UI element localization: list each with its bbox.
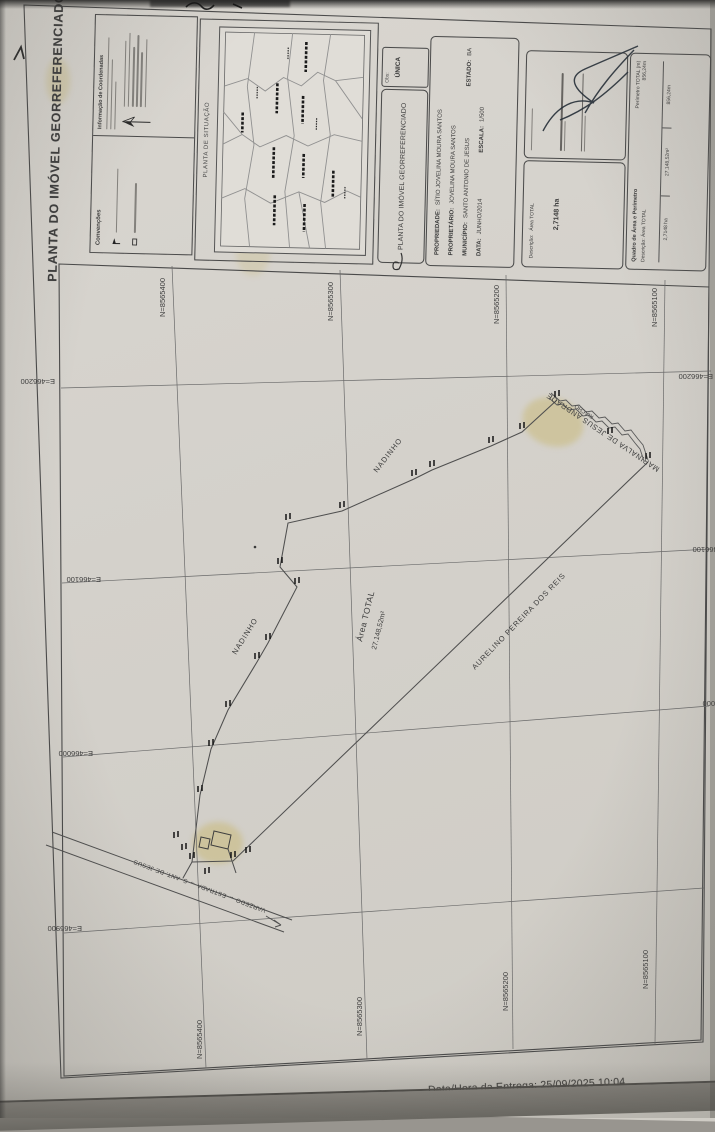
north-label-bottom: N=8565400	[195, 1020, 204, 1059]
grid-line-e1	[61, 371, 711, 388]
photo-right-edge	[710, 0, 715, 1118]
grid-line-n4	[655, 280, 665, 1044]
road-label: VARZEDO ← ESTRADA → S. ANT. DE JESUS	[133, 858, 267, 913]
pen-mark-d	[393, 253, 402, 270]
grid-lines	[61, 266, 711, 1068]
east-label-left: E=466100	[67, 575, 101, 584]
survey-point	[254, 546, 257, 549]
grid-line-e4	[64, 888, 704, 933]
north-label-bottom: N=8565200	[501, 972, 510, 1011]
north-label-top: N=8565300	[326, 282, 335, 321]
east-label-left: E=466000	[59, 749, 93, 758]
building	[199, 837, 210, 849]
sheet-border	[24, 5, 711, 1078]
photo-top-edge-dark	[150, 0, 290, 7]
east-label-left: E=465900	[48, 924, 82, 933]
north-label-top: N=8565100	[650, 288, 659, 327]
neighbor-label-nadinho: NADINHO	[230, 616, 260, 656]
photo-top-edge	[0, 0, 715, 9]
photo-left-edge	[0, 0, 6, 1118]
east-label-right: E=466200	[679, 372, 713, 381]
grid-line-n2	[340, 270, 367, 1059]
grid-line-e2	[62, 549, 711, 583]
grid-line-n3	[506, 275, 513, 1049]
north-label-bottom: N=8565300	[355, 997, 364, 1036]
east-label-left: E=466200	[21, 377, 55, 386]
signature-stroke	[543, 46, 638, 131]
plot-drawing: N=8565400 N=8565300 N=8565200 N=8565100 …	[0, 0, 715, 1118]
pen-mark-check	[14, 47, 24, 60]
neighbor-label-nadinho: NADINHO	[371, 436, 404, 474]
north-label-top: N=8565400	[158, 278, 167, 317]
road	[46, 832, 292, 932]
north-label-bottom: N=8565100	[641, 950, 650, 989]
north-label-top: N=8565200	[492, 285, 501, 324]
neighbor-label-marinalva: MARINALVA DE JESUS ANDRADE	[545, 391, 662, 474]
photo-of-survey-plan: { "document": { "side_title": "PLANTA DO…	[0, 0, 715, 1118]
area-total-label: Área TOTAL	[354, 590, 376, 643]
grid-line-n1	[172, 266, 206, 1068]
area-total-value: 27.148,52m²	[371, 610, 387, 650]
building	[211, 831, 231, 849]
buildings	[199, 831, 231, 849]
